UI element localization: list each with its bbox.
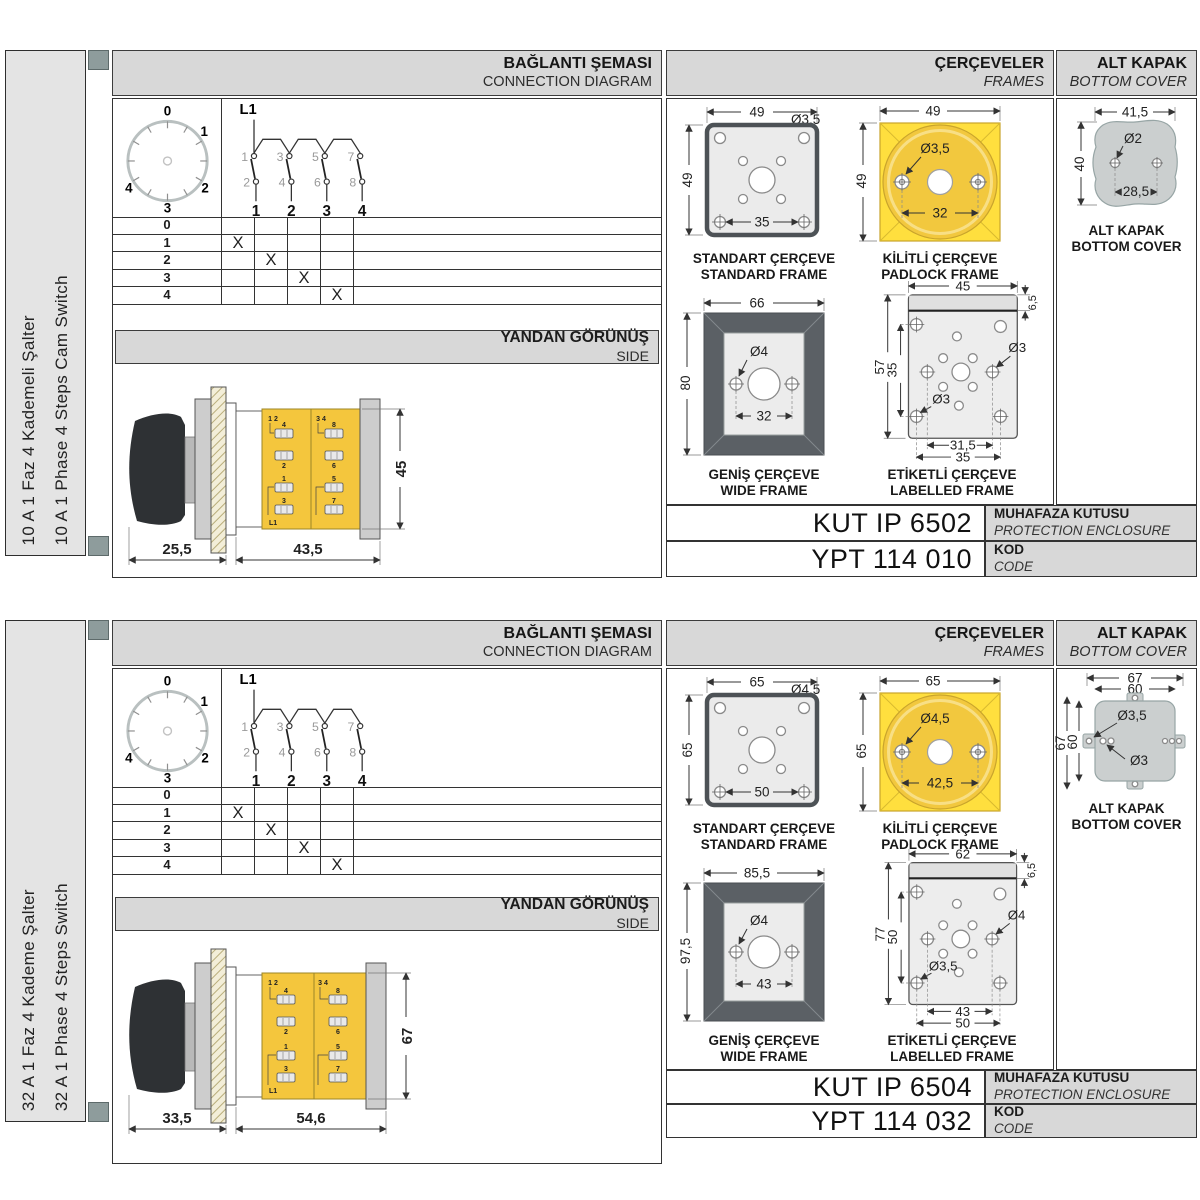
- product-code-label: KOD CODE: [985, 1104, 1197, 1138]
- dim-height: 67: [399, 1028, 416, 1045]
- dim-inner-v: 50: [885, 930, 900, 945]
- binding-strip-square-top: [88, 50, 109, 70]
- diagram-row: 0 1 2 3 4 L1: [113, 669, 661, 788]
- row-label: 2: [113, 252, 222, 269]
- diagram-row: 0 1 2 3 4 L1: [113, 99, 661, 218]
- mark-cell: [222, 252, 255, 269]
- enclosure-code-label: MUHAFAZA KUTUSU PROTECTION ENCLOSURE: [985, 1070, 1197, 1104]
- switch-position-dial: 0 1 2 3 4: [113, 669, 222, 787]
- switch-position-dial: 0 1 2 3 4: [113, 99, 222, 217]
- terminal-num: 7: [336, 1066, 340, 1073]
- mark-cell: X: [255, 822, 288, 839]
- mark-cell: [222, 840, 255, 857]
- table-row: 4 X: [113, 857, 661, 875]
- labelled-frame-label: ETİKETLİ ÇERÇEVE LABELLED FRAME: [853, 1033, 1051, 1065]
- standard-frame-drawing: 65 Ø4,5 65 50: [679, 673, 849, 819]
- schematic-source-label: L1: [239, 672, 256, 688]
- standard-frame-label: STANDART ÇERÇEVE STANDARD FRAME: [679, 251, 849, 283]
- enclosure-label-tr: MUHAFAZA KUTUSU: [994, 1070, 1196, 1087]
- dim-width: 49: [749, 105, 764, 120]
- terminal-num: 6: [332, 463, 336, 470]
- dial-pos-4: 4: [125, 181, 133, 196]
- binding-strip-square-bottom: [88, 536, 109, 556]
- binding-strip-square-top: [88, 620, 109, 640]
- dim-width: 45: [955, 278, 970, 293]
- product-code-label: KOD CODE: [985, 541, 1197, 577]
- padlock-frame-drawing: 65 65 Ø4,5 42,5: [855, 673, 1025, 819]
- terminal-num: 4: [282, 422, 286, 429]
- mark-cell: X: [222, 805, 255, 822]
- enclosure-label-en: PROTECTION ENCLOSURE: [994, 1087, 1196, 1104]
- dial-cell: 0 1 2 3 4: [113, 99, 222, 217]
- body-corner-right: 3 4: [318, 980, 328, 987]
- mark-cell: [288, 822, 321, 839]
- cover-caption-tr: ALT KAPAK: [1057, 223, 1196, 239]
- mark-cell: [288, 252, 321, 269]
- frame-title-en: STANDARD FRAME: [679, 837, 849, 853]
- body-source-label: L1: [269, 1088, 277, 1095]
- cover-header-en: BOTTOM COVER: [1070, 74, 1187, 92]
- mark-cell: [222, 287, 255, 304]
- table-row: 2 X: [113, 252, 661, 270]
- terminal-num: 3: [284, 1066, 288, 1073]
- product-title-sidebar: 32 A 1 Faz 4 Kademe Şalter 32 A 1 Phase …: [5, 620, 86, 1122]
- mark-cell: [321, 270, 354, 287]
- terminal-num: 5: [336, 1044, 340, 1051]
- mark-cell: [321, 805, 354, 822]
- row-label: 3: [113, 270, 222, 287]
- dial-pos-3: 3: [164, 201, 171, 216]
- dial-pos-0: 0: [164, 103, 171, 118]
- mark-cell: X: [321, 857, 354, 874]
- mark-cell: [255, 270, 288, 287]
- switch-position-table: 0 1 X 2 X: [113, 787, 661, 875]
- contact-bottom-6: 6: [314, 176, 321, 190]
- frames-header: ÇERÇEVELER FRAMES: [666, 620, 1054, 666]
- dim-width: 49: [925, 104, 940, 119]
- dim-inner-v: 35: [885, 363, 900, 378]
- contact-bottom-8: 8: [349, 176, 356, 190]
- labelled-frame-drawing: 45 6,5 57 35: [853, 281, 1051, 463]
- product-title-turkish: 32 A 1 Faz 4 Kademe Şalter: [19, 889, 39, 1111]
- labelled-frame-drawing: 62 6,5 77 50: [853, 849, 1051, 1029]
- dim-bottom-outer: 50: [955, 1016, 970, 1031]
- cover-caption-en: BOTTOM COVER: [1057, 239, 1196, 255]
- side-view-drawing: 1 2 3 4: [119, 371, 479, 571]
- code-label-en: CODE: [994, 559, 1196, 576]
- frames-panel: 49 Ø3,5 49 35 STANDART ÇERÇEVE STANDARD …: [666, 98, 1054, 505]
- cover-caption-en: BOTTOM COVER: [1057, 817, 1196, 833]
- bottom-cover-panel: 67 60 67 60 Ø3,5 Ø3 ALT KAPAK BOTTOM: [1056, 668, 1197, 1070]
- mark-cell: [321, 840, 354, 857]
- mark-cell: X: [288, 840, 321, 857]
- wide-frame-drawing: 85,5 97,5 Ø4 43: [679, 865, 849, 1029]
- section-32a-switch: 32 A 1 Faz 4 Kademe Şalter 32 A 1 Phase …: [0, 618, 1200, 1164]
- table-row: 4 X: [113, 287, 661, 305]
- dim-body-width: 54,6: [296, 1110, 325, 1127]
- terminal-num: 2: [284, 1029, 288, 1036]
- dial-pos-2: 2: [201, 751, 208, 766]
- cover-caption-tr: ALT KAPAK: [1057, 801, 1196, 817]
- dim-width: 65: [925, 674, 940, 689]
- switch-position-table: 0 1 X 2 X: [113, 217, 661, 305]
- connection-header-tr: BAĞLANTI ŞEMASI: [504, 54, 652, 74]
- dim-inner: 28,5: [1123, 184, 1149, 199]
- mark-cell: [321, 822, 354, 839]
- wide-frame-label: GENİŞ ÇERÇEVE WIDE FRAME: [679, 1033, 849, 1065]
- frame-title-tr: GENİŞ ÇERÇEVE: [679, 467, 849, 483]
- mark-cell: [222, 787, 255, 804]
- contact-top-3: 3: [277, 150, 284, 164]
- contact-bottom-4: 4: [279, 746, 286, 760]
- dial-cell: 0 1 2 3 4: [113, 669, 222, 787]
- connection-header-en: CONNECTION DIAGRAM: [483, 74, 652, 92]
- body-corner-left: 1 2: [268, 416, 278, 423]
- frames-header-en: FRAMES: [984, 644, 1044, 662]
- frames-header-tr: ÇERÇEVELER: [935, 54, 1044, 74]
- dim-inner: 32: [756, 409, 771, 424]
- connection-header-tr: BAĞLANTI ŞEMASI: [504, 624, 652, 644]
- dim-width: 41,5: [1122, 105, 1148, 120]
- row-label: 4: [113, 857, 222, 874]
- side-view-header: YANDAN GÖRÜNÜŞ SIDE: [115, 897, 659, 931]
- contact-top-7: 7: [347, 720, 354, 734]
- wide-frame-label: GENİŞ ÇERÇEVE WIDE FRAME: [679, 467, 849, 499]
- frame-title-tr: GENİŞ ÇERÇEVE: [679, 1033, 849, 1049]
- enclosure-code-label: MUHAFAZA KUTUSU PROTECTION ENCLOSURE: [985, 505, 1197, 541]
- dim-strip: 6,5: [1027, 295, 1039, 310]
- dim-hole-tab: Ø3,5: [1117, 708, 1146, 723]
- frame-title-en: WIDE FRAME: [679, 1049, 849, 1065]
- dim-handle-width: 33,5: [162, 1110, 191, 1127]
- frame-title-tr: STANDART ÇERÇEVE: [679, 251, 849, 267]
- terminal-num: 2: [282, 463, 286, 470]
- connection-diagram-panel: 0 1 2 3 4 L1: [112, 668, 662, 1164]
- mark-cell: [321, 787, 354, 804]
- mark-cell: [222, 217, 255, 234]
- dim-height: 97,5: [678, 938, 693, 964]
- mark-cell: [288, 217, 321, 234]
- dim-width: 66: [749, 296, 764, 311]
- contact-schematic: L1: [222, 99, 522, 217]
- mark-cell: [288, 287, 321, 304]
- padlock-frame-drawing: 49 49 Ø3,5 32: [855, 103, 1025, 249]
- frames-header-tr: ÇERÇEVELER: [935, 624, 1044, 644]
- frames-header-en: FRAMES: [984, 74, 1044, 92]
- dim-strip: 6,5: [1026, 863, 1038, 878]
- dim-height: 65: [680, 742, 695, 757]
- contact-bottom-2: 2: [243, 746, 250, 760]
- row-label: 0: [113, 217, 222, 234]
- side-header-tr: YANDAN GÖRÜNÜŞ: [501, 329, 649, 348]
- standard-frame-label: STANDART ÇERÇEVE STANDARD FRAME: [679, 821, 849, 853]
- mark-cell: [255, 287, 288, 304]
- row-label: 2: [113, 822, 222, 839]
- contact-bottom-2: 2: [243, 176, 250, 190]
- connection-diagram-panel: 0 1 2 3 4 L1: [112, 98, 662, 578]
- dial-pos-0: 0: [164, 673, 171, 688]
- mark-cell: [321, 235, 354, 252]
- product-title-english: 32 A 1 Phase 4 Steps Switch: [52, 883, 72, 1111]
- padlock-frame-label: KİLİTLİ ÇERÇEVE PADLOCK FRAME: [855, 251, 1025, 283]
- table-row: 1 X: [113, 235, 661, 253]
- bottom-cover-drawing: 67 60 67 60 Ø3,5 Ø3: [1057, 673, 1196, 797]
- panel-plate-hatched: [211, 387, 226, 553]
- frame-title-tr: KİLİTLİ ÇERÇEVE: [855, 821, 1025, 837]
- dim-hole: Ø4: [750, 913, 769, 928]
- dim-bottom-outer: 35: [955, 450, 970, 465]
- bottom-cover-panel: 41,5 40 Ø2 28,5 ALT KAPAK BOTTOM COVER: [1056, 98, 1197, 505]
- connection-header-en: CONNECTION DIAGRAM: [483, 644, 652, 662]
- dim-inner: 43: [756, 977, 771, 992]
- body-source-label: L1: [269, 520, 277, 527]
- enclosure-code-value: KUT IP 6504: [666, 1070, 985, 1104]
- dim-height: 40: [1072, 156, 1087, 171]
- dim-height: 65: [854, 743, 869, 758]
- contact-top-1: 1: [241, 150, 248, 164]
- dim-handle-width: 25,5: [162, 541, 191, 558]
- mark-cell: X: [222, 235, 255, 252]
- frame-title-tr: KİLİTLİ ÇERÇEVE: [855, 251, 1025, 267]
- dial-pos-2: 2: [201, 181, 208, 196]
- bottom-cover-header: ALT KAPAK BOTTOM COVER: [1056, 50, 1197, 96]
- terminal-num: 8: [332, 422, 336, 429]
- mark-cell: [288, 857, 321, 874]
- mark-cell: [255, 840, 288, 857]
- connection-diagram-header: BAĞLANTI ŞEMASI CONNECTION DIAGRAM: [112, 620, 662, 666]
- product-code-value: YPT 114 032: [666, 1104, 985, 1138]
- row-label: 1: [113, 235, 222, 252]
- side-header-en: SIDE: [616, 915, 649, 932]
- table-row: 3 X: [113, 840, 661, 858]
- product-title-sidebar: 10 A 1 Faz 4 Kademeli Şalter 10 A 1 Phas…: [5, 50, 86, 556]
- frame-title-en: LABELLED FRAME: [853, 1049, 1051, 1065]
- terminal-num: 4: [284, 988, 288, 995]
- product-title-english: 10 A 1 Phase 4 Steps Cam Switch: [52, 275, 72, 545]
- contact-bottom-8: 8: [349, 746, 356, 760]
- table-row: 0: [113, 217, 661, 235]
- bottom-cover-caption: ALT KAPAK BOTTOM COVER: [1057, 223, 1196, 255]
- dim-hole: Ø3,5: [920, 141, 949, 156]
- mark-cell: [255, 805, 288, 822]
- side-view-header: YANDAN GÖRÜNÜŞ SIDE: [115, 330, 659, 364]
- enclosure-code-value: KUT IP 6502: [666, 505, 985, 541]
- side-header-en: SIDE: [616, 348, 649, 365]
- frame-title-en: WIDE FRAME: [679, 483, 849, 499]
- product-code-value: YPT 114 010: [666, 541, 985, 577]
- dim-inner: 32: [932, 206, 947, 221]
- wide-frame-drawing: 66 80 Ø4 32: [679, 295, 849, 463]
- terminal-num: 1: [284, 1044, 288, 1051]
- frame-title-tr: ETİKETLİ ÇERÇEVE: [853, 1033, 1051, 1049]
- frame-title-en: STANDARD FRAME: [679, 267, 849, 283]
- mark-cell: X: [321, 287, 354, 304]
- product-title-turkish: 10 A 1 Faz 4 Kademeli Şalter: [19, 315, 39, 545]
- enclosure-label-en: PROTECTION ENCLOSURE: [994, 523, 1196, 540]
- enclosure-code-text: KUT IP 6504: [813, 1072, 972, 1103]
- dim-inner: 42,5: [927, 776, 953, 791]
- cover-header-en: BOTTOM COVER: [1070, 644, 1187, 662]
- contact-bottom-4: 4: [279, 176, 286, 190]
- row-label: 4: [113, 287, 222, 304]
- dim-inner: 50: [754, 785, 769, 800]
- row-label: 1: [113, 805, 222, 822]
- product-code-text: YPT 114 010: [811, 544, 972, 575]
- table-row: 2 X: [113, 822, 661, 840]
- mark-cell: X: [288, 270, 321, 287]
- dial-pos-1: 1: [200, 694, 208, 709]
- dim-height: 49: [680, 172, 695, 187]
- contact-top-3: 3: [277, 720, 284, 734]
- mark-cell: [321, 217, 354, 234]
- mark-cell: [321, 252, 354, 269]
- body-corner-right: 3 4: [316, 416, 326, 423]
- terminal-num: 5: [332, 476, 336, 483]
- dim-width: 62: [955, 846, 970, 861]
- mark-cell: [288, 235, 321, 252]
- dim-hole-right: Ø4: [1008, 907, 1026, 922]
- code-label-tr: KOD: [994, 1104, 1196, 1121]
- bottom-cover-caption: ALT KAPAK BOTTOM COVER: [1057, 801, 1196, 833]
- code-label-tr: KOD: [994, 542, 1196, 559]
- product-code-text: YPT 114 032: [811, 1106, 972, 1137]
- schematic-source-label: L1: [239, 102, 256, 118]
- table-row: 3 X: [113, 270, 661, 288]
- mark-cell: [255, 787, 288, 804]
- binding-strip-square-bottom: [88, 1102, 109, 1122]
- dial-pos-4: 4: [125, 751, 133, 766]
- side-header-tr: YANDAN GÖRÜNÜŞ: [501, 896, 649, 915]
- cover-header-tr: ALT KAPAK: [1097, 624, 1187, 644]
- code-label-en: CODE: [994, 1121, 1196, 1138]
- mark-cell: [222, 822, 255, 839]
- mark-cell: [222, 857, 255, 874]
- contact-top-7: 7: [347, 150, 354, 164]
- dim-height: 45: [393, 461, 410, 478]
- section-10a-switch: 10 A 1 Faz 4 Kademeli Şalter 10 A 1 Phas…: [0, 48, 1200, 578]
- dim-hole-left: Ø3: [932, 392, 950, 407]
- terminal-num: 8: [336, 988, 340, 995]
- frame-title-tr: ETİKETLİ ÇERÇEVE: [853, 467, 1051, 483]
- mark-cell: [255, 217, 288, 234]
- row-label: 3: [113, 840, 222, 857]
- dim-hole: Ø4: [750, 344, 769, 359]
- mark-cell: [288, 805, 321, 822]
- dim-hole: Ø3: [1130, 753, 1148, 768]
- connection-diagram-header: BAĞLANTI ŞEMASI CONNECTION DIAGRAM: [112, 50, 662, 96]
- mark-cell: [255, 857, 288, 874]
- enclosure-code-text: KUT IP 6502: [813, 508, 972, 539]
- dim-height: 80: [678, 375, 693, 390]
- dial-pos-3: 3: [164, 771, 171, 786]
- contact-top-1: 1: [241, 720, 248, 734]
- dim-hole-right: Ø3: [1008, 340, 1026, 355]
- contact-bottom-6: 6: [314, 746, 321, 760]
- panel-plate-hatched: [211, 949, 226, 1123]
- cover-header-tr: ALT KAPAK: [1097, 54, 1187, 74]
- handle-shape: [129, 980, 185, 1093]
- standard-frame-drawing: 49 Ø3,5 49 35: [679, 103, 849, 249]
- table-row: 0: [113, 787, 661, 805]
- terminal-num: 6: [336, 1029, 340, 1036]
- bottom-cover-header: ALT KAPAK BOTTOM COVER: [1056, 620, 1197, 666]
- terminal-num: 7: [332, 498, 336, 505]
- body-corner-left: 1 2: [268, 980, 278, 987]
- side-view-drawing: 1 2 3 4: [119, 935, 479, 1140]
- dim-height-inner: 60: [1065, 734, 1080, 749]
- dim-inner: 35: [754, 215, 769, 230]
- contact-top-5: 5: [312, 150, 319, 164]
- table-row: 1 X: [113, 805, 661, 823]
- dim-hole: Ø2: [1124, 131, 1142, 146]
- contact-schematic: L1: [222, 669, 522, 787]
- terminal-num: 3: [282, 498, 286, 505]
- mark-cell: [255, 235, 288, 252]
- mark-cell: [222, 270, 255, 287]
- handle-shape: [129, 414, 185, 525]
- labelled-frame-label: ETİKETLİ ÇERÇEVE LABELLED FRAME: [853, 467, 1051, 499]
- dim-height: 49: [854, 173, 869, 188]
- mark-cell: [288, 787, 321, 804]
- row-label: 0: [113, 787, 222, 804]
- frames-header: ÇERÇEVELER FRAMES: [666, 50, 1054, 96]
- dial-pos-1: 1: [200, 124, 208, 139]
- frames-panel: 65 Ø4,5 65 50 STANDART ÇERÇEVE STANDARD …: [666, 668, 1054, 1070]
- contact-top-5: 5: [312, 720, 319, 734]
- enclosure-label-tr: MUHAFAZA KUTUSU: [994, 506, 1196, 523]
- dim-body-width: 43,5: [293, 541, 322, 558]
- frame-title-en: LABELLED FRAME: [853, 483, 1051, 499]
- terminal-num: 1: [282, 476, 286, 483]
- dim-hole-left: Ø3,5: [929, 958, 958, 973]
- frame-title-tr: STANDART ÇERÇEVE: [679, 821, 849, 837]
- mark-cell: X: [255, 252, 288, 269]
- bottom-cover-drawing: 41,5 40 Ø2 28,5: [1057, 105, 1196, 217]
- dim-width: 65: [749, 675, 764, 690]
- dim-width: 85,5: [744, 866, 770, 881]
- dim-hole: Ø4,5: [920, 711, 949, 726]
